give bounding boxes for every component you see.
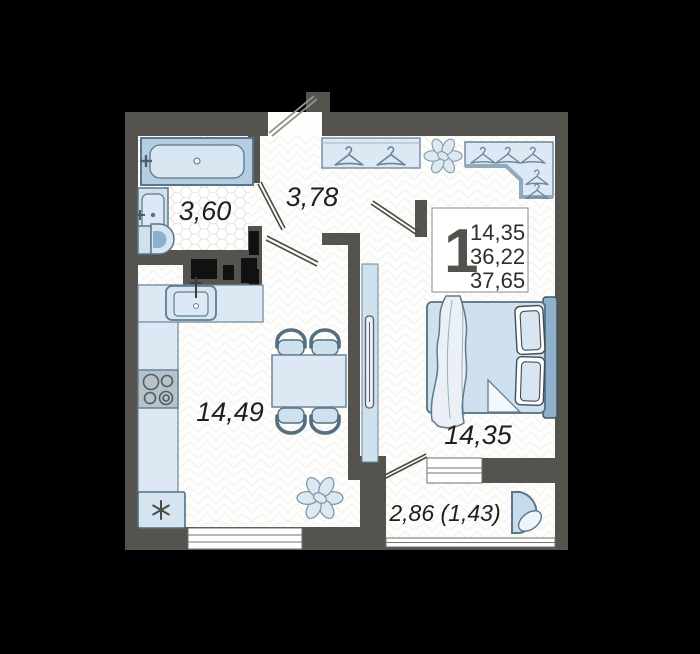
dining-table	[272, 355, 346, 407]
room-label-bedroom: 14,35	[444, 420, 513, 450]
room-label-hallway: 3,78	[286, 182, 339, 212]
info-box: 1 14,35 36,22 37,65	[432, 208, 528, 293]
pillow	[515, 305, 545, 354]
room-label-bathroom: 3,60	[179, 196, 232, 226]
room-label-kitchen-living: 14,49	[196, 397, 264, 427]
area-line-2: 36,22	[470, 244, 525, 269]
window-bedroom-balcony	[427, 458, 482, 483]
wall-left	[125, 112, 138, 550]
window-living-room	[188, 528, 302, 549]
bathtub	[140, 138, 253, 185]
stove	[138, 370, 178, 408]
area-line-3: 37,65	[470, 268, 525, 293]
balcony-glazing	[386, 538, 555, 547]
tv-unit	[362, 264, 378, 462]
area-line-1: 14,35	[470, 220, 525, 245]
wall-bedroom-balcony	[482, 458, 568, 483]
fridge	[138, 492, 185, 528]
wall-top-left	[125, 112, 268, 136]
floorplan-canvas: 1 14,35 36,22 37,65 3,60 3,78 14,49 14,3…	[0, 0, 700, 654]
wall-living-bedroom-divider	[348, 233, 360, 480]
coat-rack	[322, 138, 420, 168]
entrance-door-jamb	[306, 92, 330, 112]
pillow	[515, 357, 545, 406]
wall-top-right	[322, 112, 568, 136]
toilet	[138, 224, 174, 254]
wall-balcony-corner	[360, 456, 386, 550]
room-label-balcony: 2,86 (1,43)	[388, 500, 500, 526]
floorplan-screenshot: 1 14,35 36,22 37,65 3,60 3,78 14,49 14,3…	[0, 0, 700, 654]
bed	[427, 296, 557, 428]
